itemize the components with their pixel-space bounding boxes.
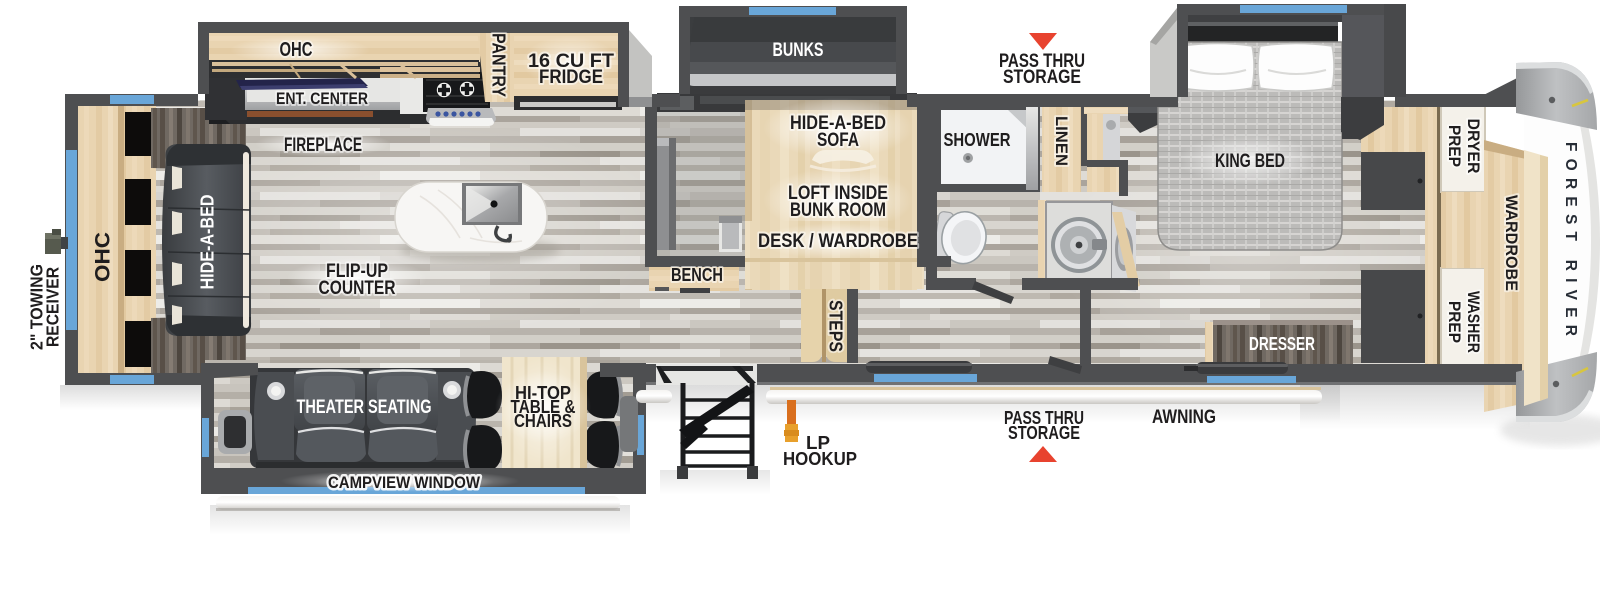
svg-text:SHOWER: SHOWER	[944, 129, 1011, 150]
svg-text:ENT. CENTER: ENT. CENTER	[276, 89, 368, 108]
svg-text:OHC: OHC	[280, 38, 313, 61]
svg-text:AWNING: AWNING	[1152, 407, 1216, 428]
svg-text:CAMPVIEW WINDOW: CAMPVIEW WINDOW	[328, 473, 481, 492]
svg-text:STEPS: STEPS	[826, 300, 846, 352]
svg-text:WASHER: WASHER	[1464, 291, 1483, 353]
svg-text:STORAGE: STORAGE	[1008, 423, 1080, 443]
svg-text:CHAIRS: CHAIRS	[514, 411, 572, 431]
svg-text:HIDE-A-BED: HIDE-A-BED	[197, 195, 218, 290]
svg-text:THEATER SEATING: THEATER SEATING	[297, 396, 432, 418]
svg-text:PREP: PREP	[1445, 125, 1464, 167]
svg-text:KING BED: KING BED	[1215, 150, 1285, 172]
svg-text:DRYER: DRYER	[1464, 119, 1483, 174]
svg-text:PANTRY: PANTRY	[489, 33, 509, 97]
svg-text:FIREPLACE: FIREPLACE	[284, 134, 362, 156]
svg-text:DRESSER: DRESSER	[1249, 333, 1315, 354]
svg-text:SOFA: SOFA	[817, 130, 859, 151]
svg-text:BUNK ROOM: BUNK ROOM	[790, 200, 886, 221]
svg-text:STORAGE: STORAGE	[1003, 66, 1081, 88]
svg-text:DESK / WARDROBE: DESK / WARDROBE	[758, 231, 918, 252]
svg-text:HOOKUP: HOOKUP	[783, 448, 857, 469]
svg-text:FRIDGE: FRIDGE	[539, 66, 603, 88]
svg-text:RECEIVER: RECEIVER	[43, 267, 63, 347]
svg-text:LINEN: LINEN	[1052, 116, 1070, 166]
svg-text:FOREST RIVER: FOREST RIVER	[1562, 142, 1579, 338]
svg-text:COUNTER: COUNTER	[319, 277, 396, 299]
svg-text:WARDROBE: WARDROBE	[1502, 195, 1521, 291]
svg-text:BENCH: BENCH	[671, 265, 723, 285]
svg-text:BUNKS: BUNKS	[773, 39, 824, 61]
svg-text:PREP: PREP	[1445, 301, 1464, 343]
svg-text:OHC: OHC	[92, 232, 115, 282]
